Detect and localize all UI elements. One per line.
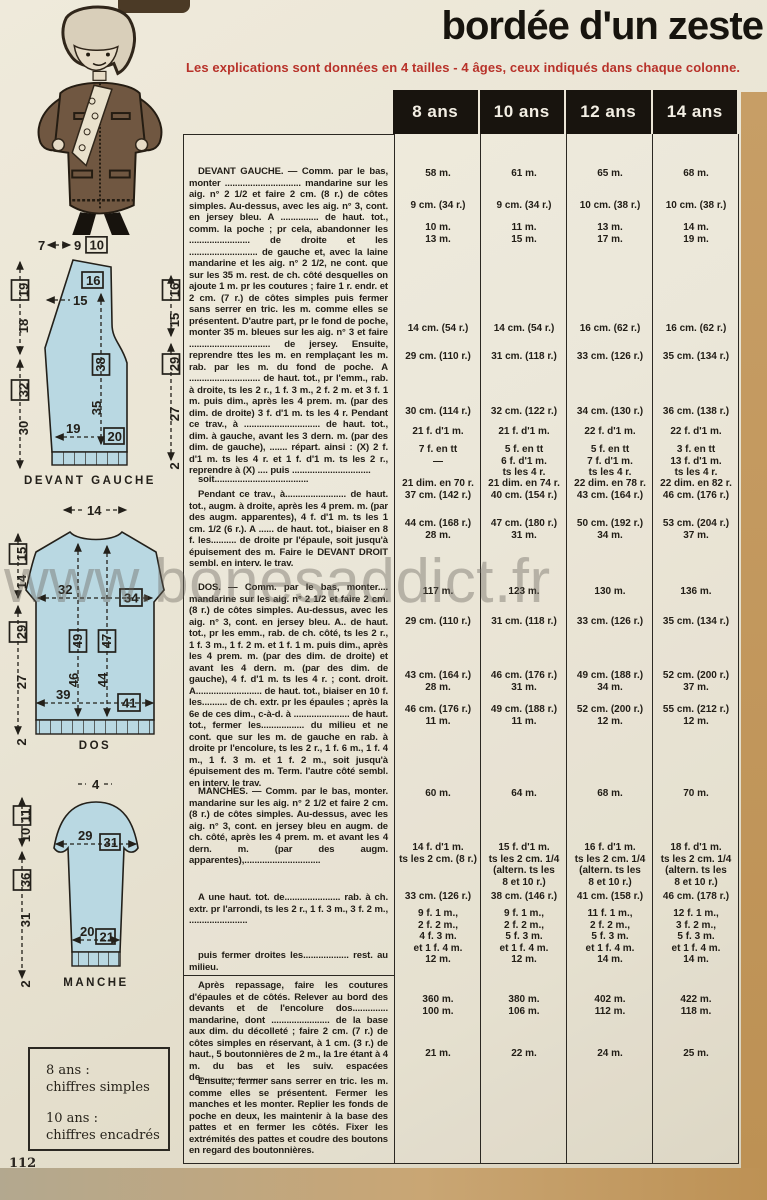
table-value: 380 m. 106 m.	[481, 994, 567, 1017]
table-value: 46 cm. (178 r.)	[653, 891, 739, 903]
table-value: 3 f. en tt 13 f. d'1 m. ts les 4 r.	[653, 444, 739, 479]
table-value: 38 cm. (146 r.)	[481, 891, 567, 903]
child-illustration	[14, 2, 184, 235]
table-value: 14 f. d'1 m. ts les 2 cm. (8 r.)	[395, 842, 481, 865]
table-value: 9 cm. (34 r.)	[395, 200, 481, 212]
table-value: 10 m. 13 m.	[395, 222, 481, 245]
dos-chest-34-boxed: 34	[124, 591, 139, 606]
dg-center-38-boxed: 38	[93, 357, 108, 371]
dos-44-boxed-47: 47	[99, 634, 114, 648]
table-value: 21 dim. en 74 r. 40 cm. (154 r.)	[481, 478, 567, 501]
table-value: 13 m. 17 m.	[567, 222, 653, 245]
table-value: 31 cm. (118 r.)	[481, 351, 567, 363]
manche-label: MANCHE	[63, 977, 128, 989]
dos-46: 46	[66, 673, 81, 687]
table-value: 52 cm. (200 r.) 12 m.	[567, 704, 653, 727]
table-value: 49 cm. (188 r.) 11 m.	[481, 704, 567, 727]
table-value: 50 cm. (192 r.) 34 m.	[567, 518, 653, 541]
table-value: 30 cm. (114 r.)	[395, 406, 481, 418]
table-value: 41 cm. (158 r.)	[567, 891, 653, 903]
dg-left-32-boxed: 32	[16, 383, 31, 397]
size-header-12ans: 12 ans	[566, 90, 651, 134]
dos-44: 44	[95, 672, 110, 687]
instruction-paragraph: DOS. — Comm. par le bas, monter.... mand…	[189, 582, 388, 789]
table-value: 55 cm. (212 r.) 12 m.	[653, 704, 739, 727]
instruction-paragraph: A une haut. tot. de.....................…	[189, 892, 388, 927]
table-value: 12 f. 1 m., 3 f. 2 m., 5 f. 3 m. et 1 f.…	[653, 908, 739, 966]
table-value: 24 m.	[567, 1048, 653, 1060]
instruction-paragraph: MANCHES. — Comm. par le bas, monter. man…	[189, 786, 388, 867]
table-value: 36 cm. (138 r.)	[653, 406, 739, 418]
page-subtitle: Les explications sont données en 4 taill…	[186, 60, 764, 75]
table-value: 70 m.	[653, 788, 739, 800]
table-value: 22 f. d'1 m.	[567, 426, 653, 438]
table-value: 9 f. 1 m., 2 f. 2 m., 5 f. 3 m. et 1 f. …	[481, 908, 567, 966]
dg-neck-15: 15	[73, 293, 87, 308]
instruction-paragraph: Pendant ce trav., à.....................…	[189, 489, 388, 570]
table-value: 33 cm. (126 r.)	[567, 616, 653, 628]
dg-left-18: 18	[16, 319, 31, 333]
instructions-column: DEVANT GAUCHE. — Comm. par le bas, monte…	[184, 134, 394, 1163]
size-header-14ans: 14 ans	[653, 90, 738, 134]
instructions-divider	[184, 975, 394, 976]
table-value: 35 cm. (134 r.)	[653, 616, 739, 628]
table-value: 21 f. d'1 m.	[395, 426, 481, 438]
manche-21-boxed: 21	[100, 930, 114, 945]
dos-left-2: 2	[14, 738, 29, 745]
manche-left-36-boxed: 36	[18, 873, 33, 887]
dos-left-27: 27	[14, 675, 29, 689]
table-value: 22 dim. en 82 r. 46 cm. (176 r.)	[653, 478, 739, 501]
dg-right-2: 2	[167, 462, 182, 469]
table-value: 47 cm. (180 r.) 31 m.	[481, 518, 567, 541]
instruction-paragraph: Après repassage, faire les coutures d'ép…	[189, 980, 388, 1084]
dg-right-15: 15	[167, 313, 182, 327]
table-value: 21 dim. en 70 r. 37 cm. (142 r.)	[395, 478, 481, 501]
table-value: 29 cm. (110 r.)	[395, 616, 481, 628]
dg-right-29-boxed: 29	[167, 357, 182, 371]
dos-46-boxed-49: 49	[70, 634, 85, 648]
table-value: 68 m.	[567, 788, 653, 800]
instruction-paragraph: puis fermer droites les.................…	[189, 950, 388, 973]
size-header-8ans: 8 ans	[393, 90, 478, 134]
table-value: 422 m. 118 m.	[653, 994, 739, 1017]
dg-center-35: 35	[89, 401, 104, 415]
dos-top-14: 14	[87, 503, 102, 518]
instruction-paragraph: DEVANT GAUCHE. — Comm. par le bas, monte…	[189, 166, 388, 477]
table-value: 35 cm. (134 r.)	[653, 351, 739, 363]
table-value: 33 cm. (126 r.)	[395, 891, 481, 903]
table-value: 22 m.	[481, 1048, 567, 1060]
table-value: 34 cm. (130 r.)	[567, 406, 653, 418]
size-table-body: DEVANT GAUCHE. — Comm. par le bas, monte…	[183, 134, 739, 1164]
instruction-paragraph: soit....................................…	[189, 474, 388, 486]
legend-desc-1: chiffres simples	[46, 1080, 168, 1095]
table-value: 18 f. d'1 m. ts les 2 cm. 1/4 (altern. t…	[653, 842, 739, 888]
page-title: bordée d'un zeste	[380, 4, 763, 49]
table-value: 65 m.	[567, 168, 653, 180]
dg-top-9: 9	[74, 238, 81, 253]
dg-top-10-boxed: 10	[90, 238, 104, 253]
dos-bottom-39: 39	[56, 687, 70, 702]
dg-top-7: 7	[38, 238, 45, 253]
table-value: 5 f. en tt 6 f. d'1 m. ts les 4 r.	[481, 444, 567, 479]
values-column-8ans: 58 m.9 cm. (34 r.)10 m. 13 m.14 cm. (54 …	[395, 134, 481, 1163]
table-value: 68 m.	[653, 168, 739, 180]
table-value: 60 m.	[395, 788, 481, 800]
table-value: 16 cm. (62 r.)	[653, 323, 739, 335]
manche-31-boxed: 31	[104, 835, 118, 850]
manche-left-31: 31	[18, 913, 33, 927]
table-value: 46 cm. (176 r.) 11 m.	[395, 704, 481, 727]
dos-left-15-boxed: 15	[14, 547, 29, 561]
dg-right-27: 27	[167, 407, 182, 421]
values-column-12ans: 65 m.10 cm. (38 r.)13 m. 17 m.16 cm. (62…	[567, 134, 653, 1163]
table-value: 123 m.	[481, 586, 567, 598]
table-value: 360 m. 100 m.	[395, 994, 481, 1017]
dos-left-29-boxed: 29	[14, 625, 29, 639]
dg-bottom-20-boxed: 20	[108, 429, 122, 444]
table-value: 22 dim. en 78 r. 43 cm. (164 r.)	[567, 478, 653, 501]
table-value: 14 cm. (54 r.)	[481, 323, 567, 335]
table-value: 136 m.	[653, 586, 739, 598]
table-value: 21 f. d'1 m.	[481, 426, 567, 438]
table-value: 14 cm. (54 r.)	[395, 323, 481, 335]
table-value: 53 cm. (204 r.) 37 m.	[653, 518, 739, 541]
values-column-14ans: 68 m.10 cm. (38 r.)14 m. 19 m.16 cm. (62…	[653, 134, 739, 1163]
table-value: 5 f. en tt 7 f. d'1 m. ts les 4 r.	[567, 444, 653, 479]
dg-bottom-19: 19	[66, 421, 80, 436]
manche-top-4: 4	[92, 777, 100, 792]
values-column-10ans: 61 m.9 cm. (34 r.)11 m. 15 m.14 cm. (54 …	[481, 134, 567, 1163]
manche-left-11-boxed: 11	[18, 809, 33, 823]
table-value: 44 cm. (168 r.) 28 m.	[395, 518, 481, 541]
dg-inner-16-boxed: 16	[86, 273, 100, 288]
table-value: 11 f. 1 m., 2 f. 2 m., 5 f. 3 m. et 1 f.…	[567, 908, 653, 966]
table-value: 10 cm. (38 r.)	[653, 200, 739, 212]
table-value: 15 f. d'1 m. ts les 2 cm. 1/4 (altern. t…	[481, 842, 567, 888]
dg-right-16-boxed: 16	[167, 283, 182, 297]
legend-size-1: 8 ans :	[46, 1063, 168, 1078]
legend-box: 8 ans : chiffres simples 10 ans : chiffr…	[28, 1047, 170, 1151]
table-value: 52 cm. (200 r.) 37 m.	[653, 670, 739, 693]
photo-edge-right	[741, 92, 767, 1168]
manche-left-10: 10	[18, 828, 33, 842]
table-value: 43 cm. (164 r.) 28 m.	[395, 670, 481, 693]
table-value: 33 cm. (126 r.)	[567, 351, 653, 363]
dg-label: DEVANT GAUCHE	[24, 475, 156, 487]
table-value: 31 cm. (118 r.)	[481, 616, 567, 628]
table-value: 7 f. en tt —	[395, 444, 481, 467]
table-value: 21 m.	[395, 1048, 481, 1060]
size-table-header: 8 ans 10 ans 12 ans 14 ans	[393, 90, 737, 134]
dos-chest-32: 32	[58, 582, 72, 597]
manche-left-2: 2	[18, 980, 33, 987]
table-value: 402 m. 112 m.	[567, 994, 653, 1017]
magazine-page: { "page": { "title": "bordée d'un zeste"…	[0, 0, 767, 1200]
table-value: 14 m. 19 m.	[653, 222, 739, 245]
table-value: 64 m.	[481, 788, 567, 800]
schematic-devant-gauche: 7 9 10 19 18 32 30 16 15 16 15 29 27 2 3…	[8, 236, 184, 488]
manche-29: 29	[78, 828, 92, 843]
table-value: 11 m. 15 m.	[481, 222, 567, 245]
table-value: 117 m.	[395, 586, 481, 598]
schematic-manche: 4 29 31 11 10 36 31 2 20 21 MANCHE	[8, 772, 184, 990]
table-value: 16 cm. (62 r.)	[567, 323, 653, 335]
table-value: 10 cm. (38 r.)	[567, 200, 653, 212]
table-value: 25 m.	[653, 1048, 739, 1060]
table-value: 61 m.	[481, 168, 567, 180]
dos-label: DOS	[79, 740, 111, 752]
table-value: 9 f. 1 m., 2 f. 2 m., 4 f. 3 m. et 1 f. …	[395, 908, 481, 966]
table-value: 16 f. d'1 m. ts les 2 cm. 1/4 (altern. t…	[567, 842, 653, 888]
table-value: 29 cm. (110 r.)	[395, 351, 481, 363]
table-value: 49 cm. (188 r.) 34 m.	[567, 670, 653, 693]
photo-edge-bottom	[0, 1168, 767, 1200]
dos-bottom-41-boxed: 41	[122, 696, 136, 711]
dg-left-30: 30	[16, 421, 31, 435]
table-value: 32 cm. (122 r.)	[481, 406, 567, 418]
legend-desc-2: chiffres encadrés	[46, 1128, 168, 1143]
table-value: 58 m.	[395, 168, 481, 180]
table-value: 9 cm. (34 r.)	[481, 200, 567, 212]
size-header-10ans: 10 ans	[480, 90, 565, 134]
table-value: 22 f. d'1 m.	[653, 426, 739, 438]
table-value: 46 cm. (176 r.) 31 m.	[481, 670, 567, 693]
dos-left-14: 14	[14, 574, 29, 589]
manche-20: 20	[80, 924, 94, 939]
legend-size-2: 10 ans :	[46, 1111, 168, 1126]
instruction-paragraph: Ensuite, fermer sans serrer en tric. les…	[189, 1076, 388, 1157]
schematic-dos: 14 15 14 29 27 2 32 34 49 46 47 44 39 41…	[6, 494, 186, 752]
table-value: 130 m.	[567, 586, 653, 598]
dg-left-19-boxed: 19	[16, 283, 31, 297]
